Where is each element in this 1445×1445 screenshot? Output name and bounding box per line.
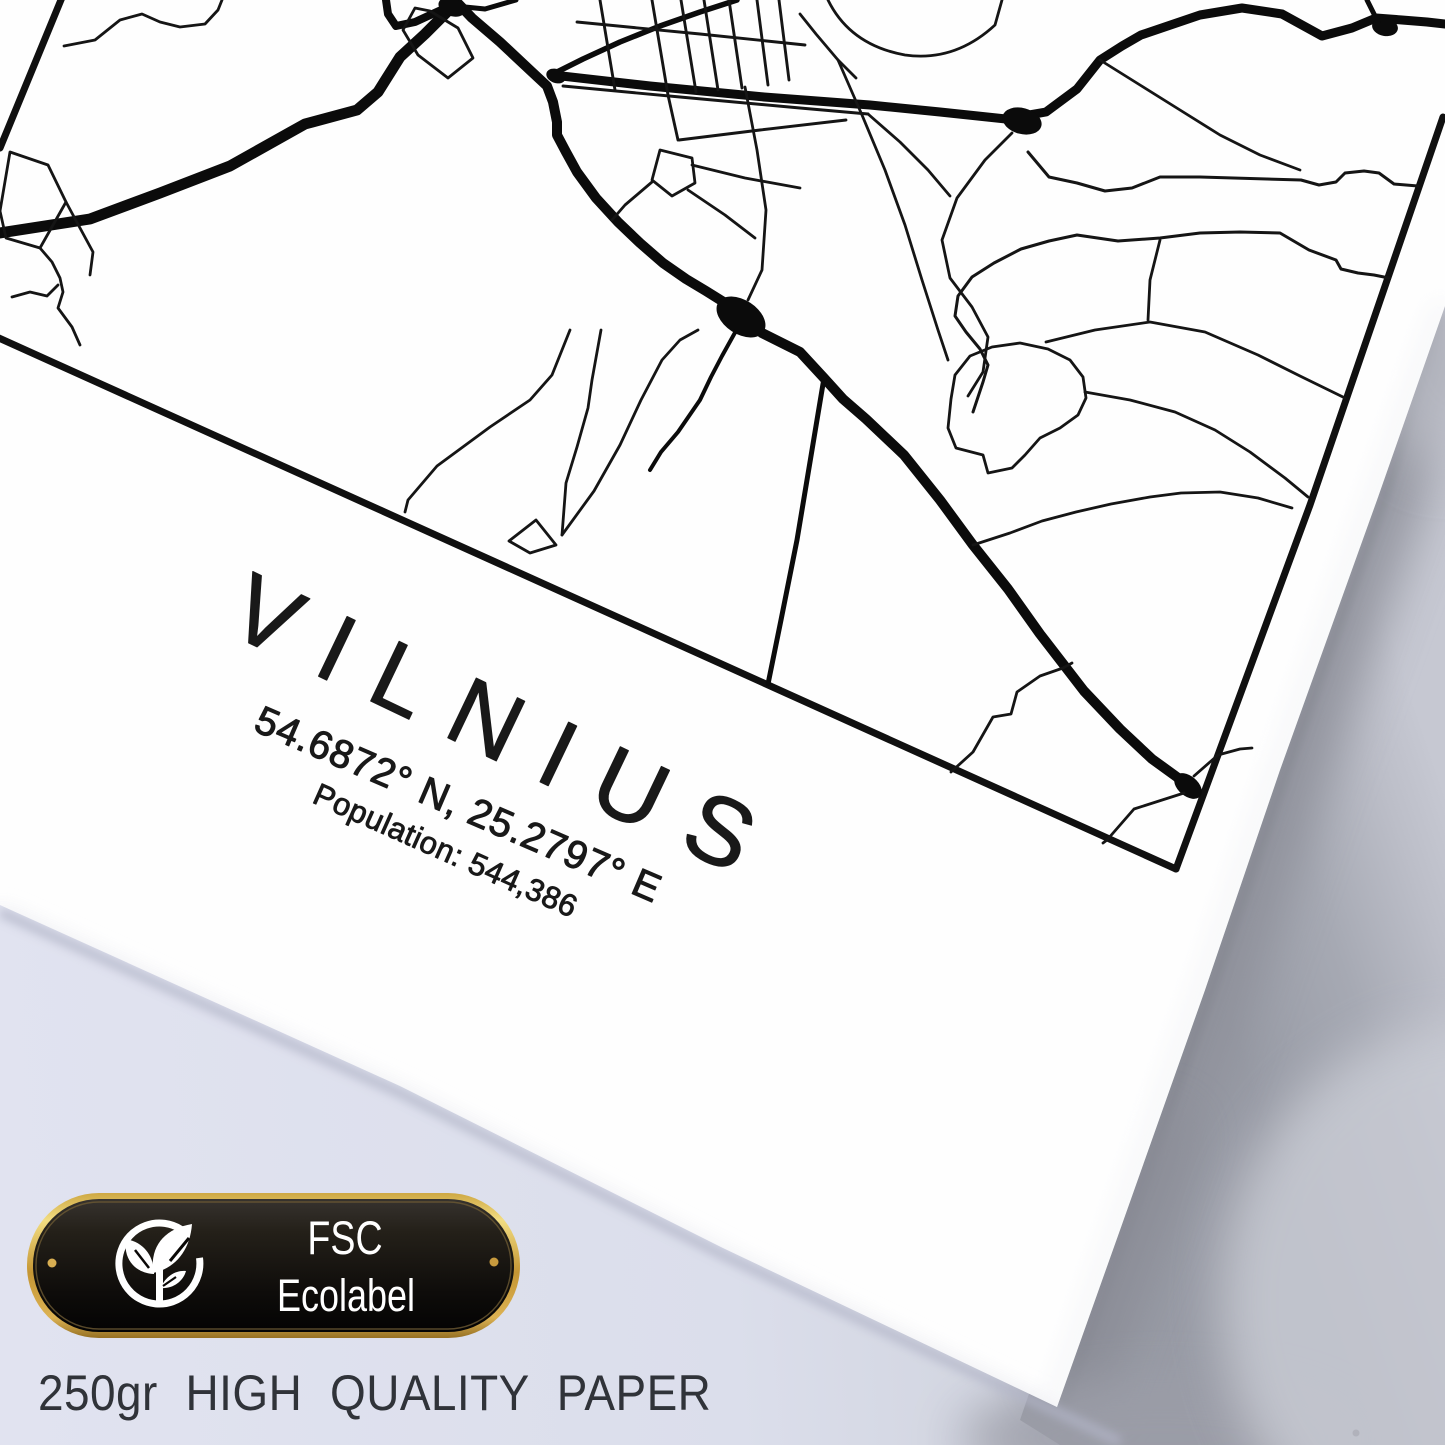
svg-text:Ecolabel: Ecolabel [277,1270,415,1321]
svg-text:FSC: FSC [307,1212,382,1265]
svg-text:250gr HIGH QUALITY PAPER: 250gr HIGH QUALITY PAPER [38,1365,711,1421]
